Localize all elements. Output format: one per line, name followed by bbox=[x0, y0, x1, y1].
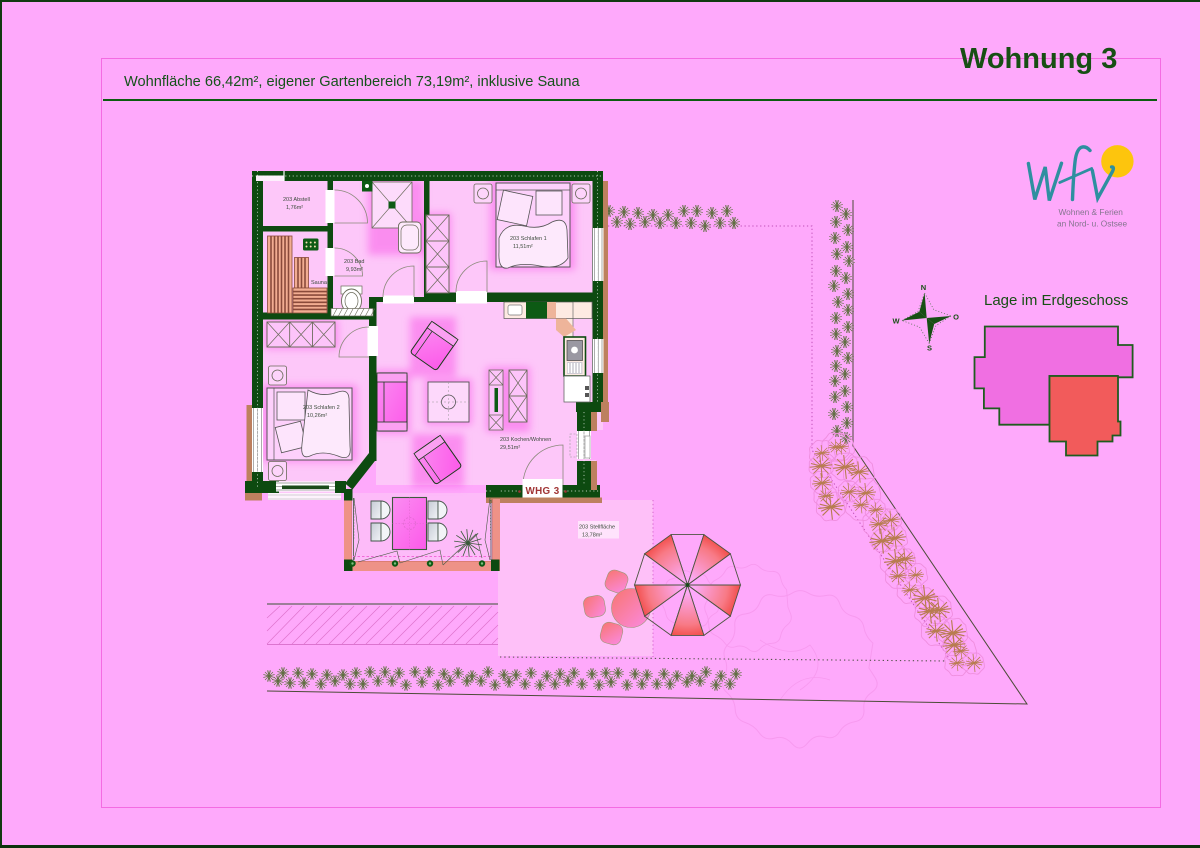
svg-text:13,78m²: 13,78m² bbox=[582, 533, 602, 539]
svg-text:9,93m²: 9,93m² bbox=[346, 267, 363, 273]
svg-text:10,26m²: 10,26m² bbox=[307, 413, 327, 419]
svg-text:203 Schlafen 1: 203 Schlafen 1 bbox=[510, 236, 547, 242]
svg-text:203 Abstell: 203 Abstell bbox=[283, 197, 310, 203]
svg-text:W: W bbox=[892, 317, 900, 326]
svg-text:11,51m²: 11,51m² bbox=[513, 244, 533, 250]
svg-text:Lage im Erdgeschoss: Lage im Erdgeschoss bbox=[984, 292, 1128, 309]
svg-text:203 Kochen/Wohnen: 203 Kochen/Wohnen bbox=[500, 437, 551, 443]
svg-text:Sauna: Sauna bbox=[311, 280, 328, 286]
svg-text:S: S bbox=[927, 344, 932, 353]
svg-text:29,51m²: 29,51m² bbox=[500, 445, 520, 451]
svg-text:203 Stellfläche: 203 Stellfläche bbox=[579, 525, 615, 531]
svg-text:N: N bbox=[921, 283, 926, 292]
svg-text:203 Schlafen 2: 203 Schlafen 2 bbox=[303, 405, 340, 411]
svg-text:an Nord- u. Ostsee: an Nord- u. Ostsee bbox=[1057, 219, 1127, 229]
svg-text:203 Bad: 203 Bad bbox=[344, 259, 365, 265]
svg-text:O: O bbox=[953, 313, 959, 322]
svg-text:1,76m²: 1,76m² bbox=[286, 205, 303, 211]
svg-text:Wohnen & Ferien: Wohnen & Ferien bbox=[1059, 207, 1124, 217]
svg-text:WHG 3: WHG 3 bbox=[525, 486, 559, 497]
